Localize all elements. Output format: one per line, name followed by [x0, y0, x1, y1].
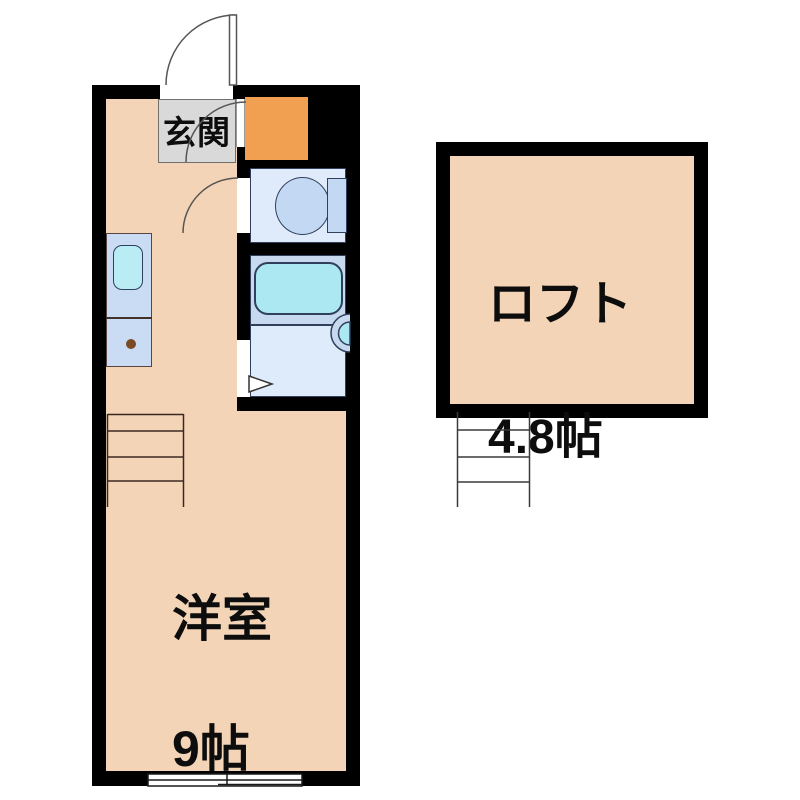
- loft-wall-right: [694, 142, 708, 418]
- wall-below-bath: [237, 397, 360, 411]
- entrance-door-swing-icon: [166, 15, 236, 85]
- counter-divider: [106, 317, 152, 319]
- loft-wall-left: [436, 142, 450, 418]
- wall-right: [346, 85, 360, 786]
- main-room-name: 洋室: [172, 587, 272, 652]
- wall-toilet-bath: [237, 243, 360, 255]
- bathtub-icon: [254, 262, 343, 315]
- wash-room: [250, 325, 346, 397]
- main-room-size: 9帖: [172, 717, 272, 782]
- toilet-door-opening: [237, 178, 250, 233]
- wash-room-door-opening: [237, 340, 250, 397]
- kitchen-sink-icon: [113, 245, 143, 290]
- main-room-label: 洋室 9帖: [172, 522, 272, 800]
- floorplan: 玄関 洋室 9帖 ロフト 4.8帖: [0, 0, 800, 800]
- wall-left: [92, 85, 106, 786]
- stove-burner-icon: [126, 339, 136, 349]
- loft-room-name: ロフト: [488, 272, 632, 338]
- loft-room-label: ロフト 4.8帖: [488, 206, 632, 537]
- entrance-door-leaf-icon: [230, 15, 237, 85]
- toilet-tank-icon: [327, 178, 347, 233]
- genkan-label: 玄関: [156, 106, 238, 154]
- loft-room-size: 4.8帖: [488, 405, 632, 471]
- entrance-door-opening: [160, 85, 233, 99]
- entry-closet: [245, 97, 308, 160]
- loft-wall-top: [436, 142, 708, 156]
- toilet-icon: [275, 177, 330, 235]
